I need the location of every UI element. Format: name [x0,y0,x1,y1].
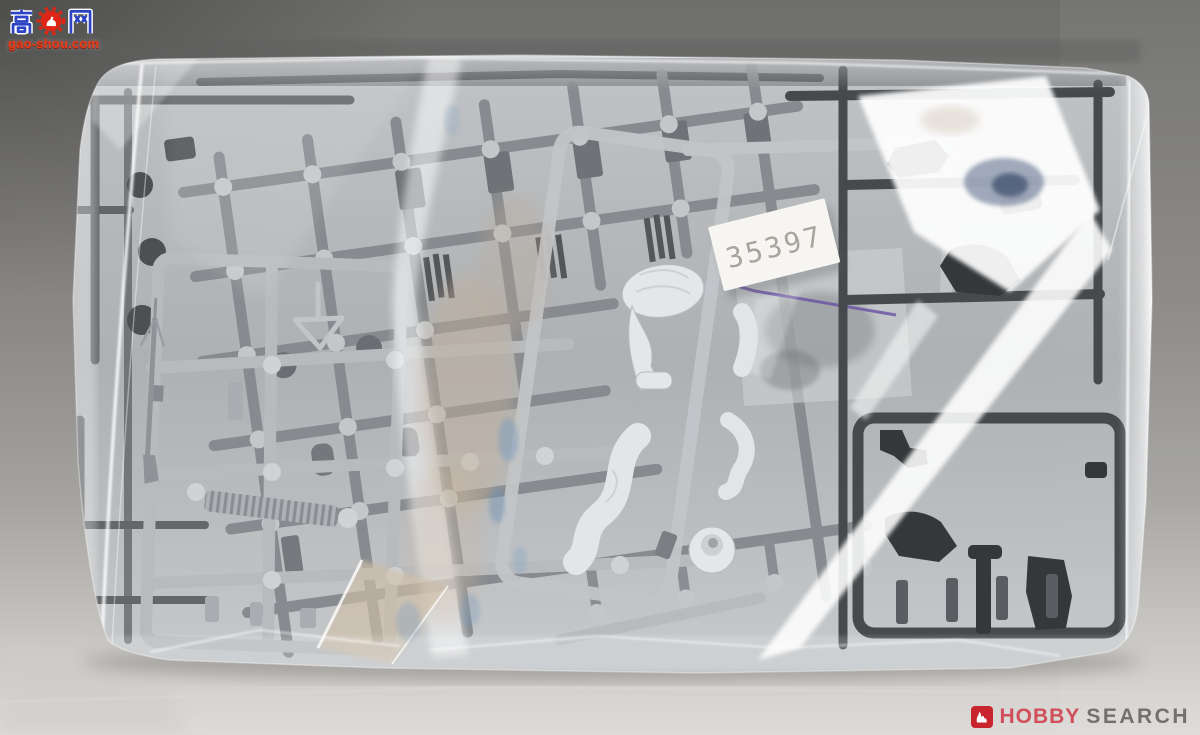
photo-stage: 35397 [0,0,1200,735]
flame-icon [971,706,993,728]
brand-word-hobby: HOBBY [999,705,1080,729]
product-photo: 35397 [0,0,1200,735]
cn-char-wang-icon [67,8,94,35]
brand-word-search: SEARCH [1086,705,1190,729]
shovel-part [228,382,243,420]
cn-char-gao-icon [8,8,35,35]
watermark-site-url: gao-shou.com [8,37,99,50]
watermark-logo: 高手网 [8,6,99,36]
hobby-search-logo: HOBBY SEARCH [971,705,1190,729]
gear-thumb-icon [36,6,66,36]
watermark: 高手网 gao-shou.com [8,6,99,50]
